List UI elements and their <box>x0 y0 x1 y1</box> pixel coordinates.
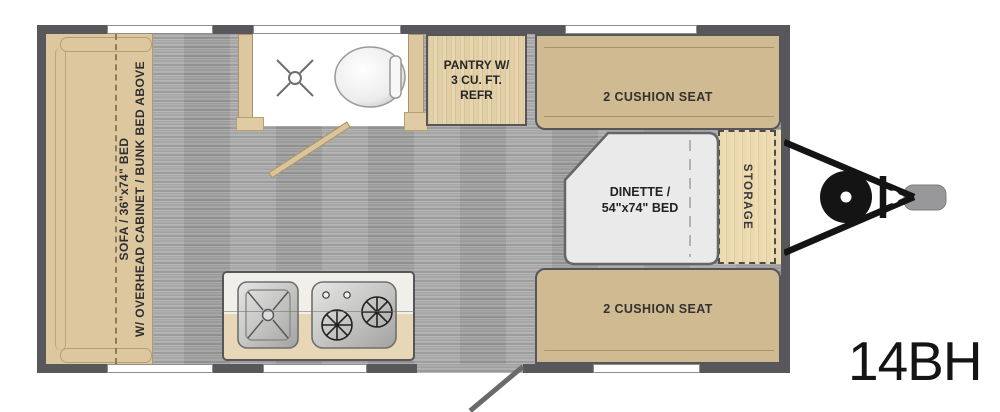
pantry-label-line3: REFR <box>444 88 510 103</box>
sofa-label-line1: SOFA / 36"x74" BED <box>116 61 132 337</box>
counter-edge-line <box>222 311 415 312</box>
bathroom-wall-left <box>238 34 253 119</box>
sofa-bunk-area: SOFA / 36"x74" BED W/ OVERHEAD CABINET /… <box>46 34 153 364</box>
bathroom-ledge-left <box>236 117 264 131</box>
sofa-back-cushion <box>55 48 66 350</box>
window-front-right <box>565 25 697 34</box>
sofa-armrest-bottom <box>60 348 152 363</box>
seat-front-line <box>544 116 774 117</box>
pantry-label-line2: 3 CU. FT. <box>444 73 510 88</box>
seat-back-line <box>544 350 774 351</box>
dinette-label-line1: DINETTE / <box>575 184 705 200</box>
sink-icon <box>236 280 300 350</box>
sofa-label: SOFA / 36"x74" BED W/ OVERHEAD CABINET /… <box>116 61 148 337</box>
stove-icon <box>310 280 398 350</box>
floorplan-canvas: SOFA / 36"x74" BED W/ OVERHEAD CABINET /… <box>0 0 1000 412</box>
toilet-icon <box>332 45 410 111</box>
dinette-label-line2: 54"x74" BED <box>575 200 705 216</box>
cushion-seat-front-label: 2 CUSHION SEAT <box>537 90 779 104</box>
cushion-seat-rear: 2 CUSHION SEAT <box>535 268 781 364</box>
cushion-seat-front: 2 CUSHION SEAT <box>535 34 781 130</box>
cushion-seat-rear-label: 2 CUSHION SEAT <box>537 302 779 316</box>
storage-dashed-outline: STORAGE <box>718 130 776 264</box>
model-number: 14BH <box>848 329 982 393</box>
window-rear-right <box>593 364 700 373</box>
bathroom-wall-right <box>408 34 424 114</box>
hitch-icon <box>784 118 964 276</box>
entry-door-opening <box>417 364 523 373</box>
pantry-cabinet: PANTRY W/ 3 CU. FT. REFR <box>426 34 527 126</box>
shower-drain-icon <box>270 53 320 103</box>
seat-back-line <box>544 47 774 48</box>
window-rear-left <box>107 364 213 373</box>
bathroom-ledge-right <box>404 112 428 131</box>
window-bathroom <box>253 25 401 34</box>
window-kitchen <box>263 364 367 373</box>
sofa-label-line2: W/ OVERHEAD CABINET / BUNK BED ABOVE <box>132 61 148 337</box>
storage-label: STORAGE <box>741 164 753 230</box>
window-front-left <box>107 25 213 34</box>
pantry-label-line1: PANTRY W/ <box>444 58 510 73</box>
sofa-armrest-top <box>60 37 152 52</box>
dinette-label: DINETTE / 54"x74" BED <box>575 184 705 216</box>
